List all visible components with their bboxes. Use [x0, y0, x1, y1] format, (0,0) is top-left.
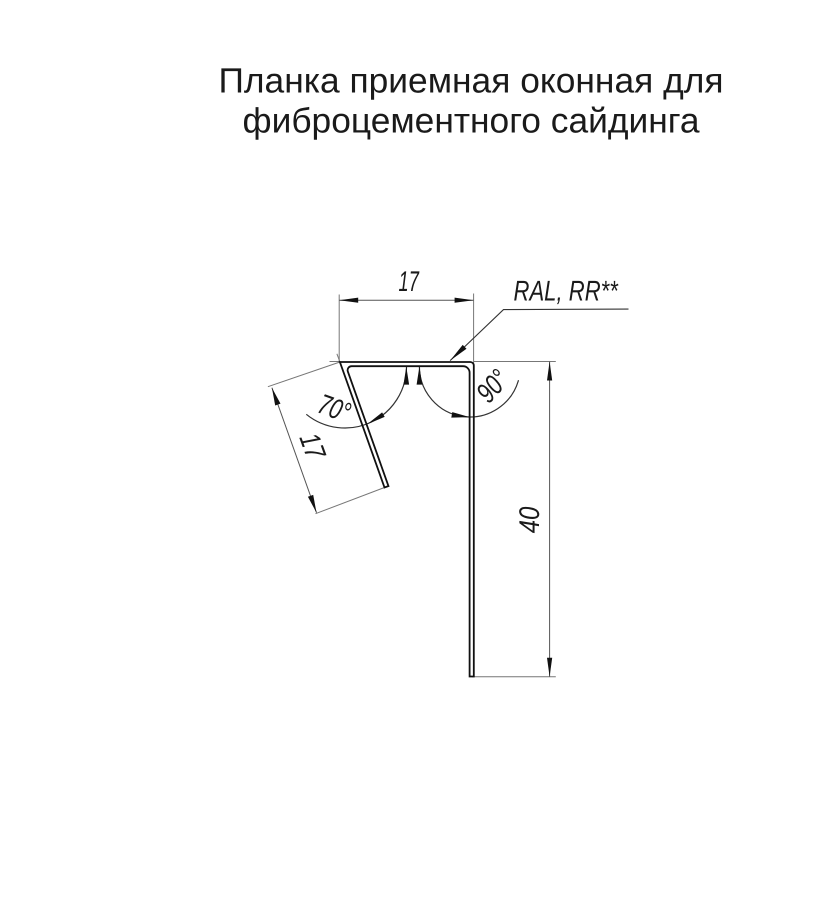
svg-text:фиброцементного сайдинга: фиброцементного сайдинга	[243, 102, 701, 141]
svg-text:RAL, RR**: RAL, RR**	[514, 276, 619, 308]
svg-text:17: 17	[399, 266, 420, 298]
svg-text:17: 17	[293, 429, 332, 465]
svg-text:90°: 90°	[470, 364, 515, 409]
svg-text:Планка приемная оконная для: Планка приемная оконная для	[219, 62, 724, 101]
svg-text:40: 40	[514, 507, 546, 534]
svg-text:70°: 70°	[313, 388, 354, 429]
